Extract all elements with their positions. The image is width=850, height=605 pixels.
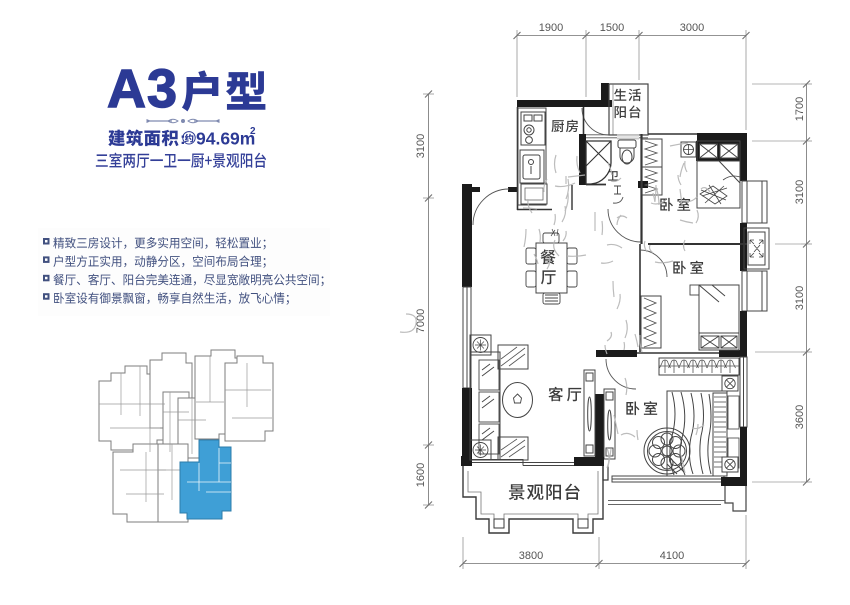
svg-text:A3: A3 [107,59,178,119]
svg-text:2: 2 [250,126,256,137]
svg-text:3100: 3100 [794,286,806,310]
svg-text:1700: 1700 [794,97,806,121]
svg-text:3800: 3800 [519,550,543,562]
svg-text:1600: 1600 [415,463,427,487]
svg-text:94.69m: 94.69m [196,129,255,149]
svg-text:1500: 1500 [600,22,624,34]
svg-text:3000: 3000 [680,22,704,34]
svg-text:4100: 4100 [660,550,684,562]
svg-text:3100: 3100 [415,134,427,158]
svg-text:1900: 1900 [539,22,563,34]
svg-text:7000: 7000 [415,309,427,333]
svg-text:3600: 3600 [794,405,806,429]
svg-text:3100: 3100 [794,180,806,204]
